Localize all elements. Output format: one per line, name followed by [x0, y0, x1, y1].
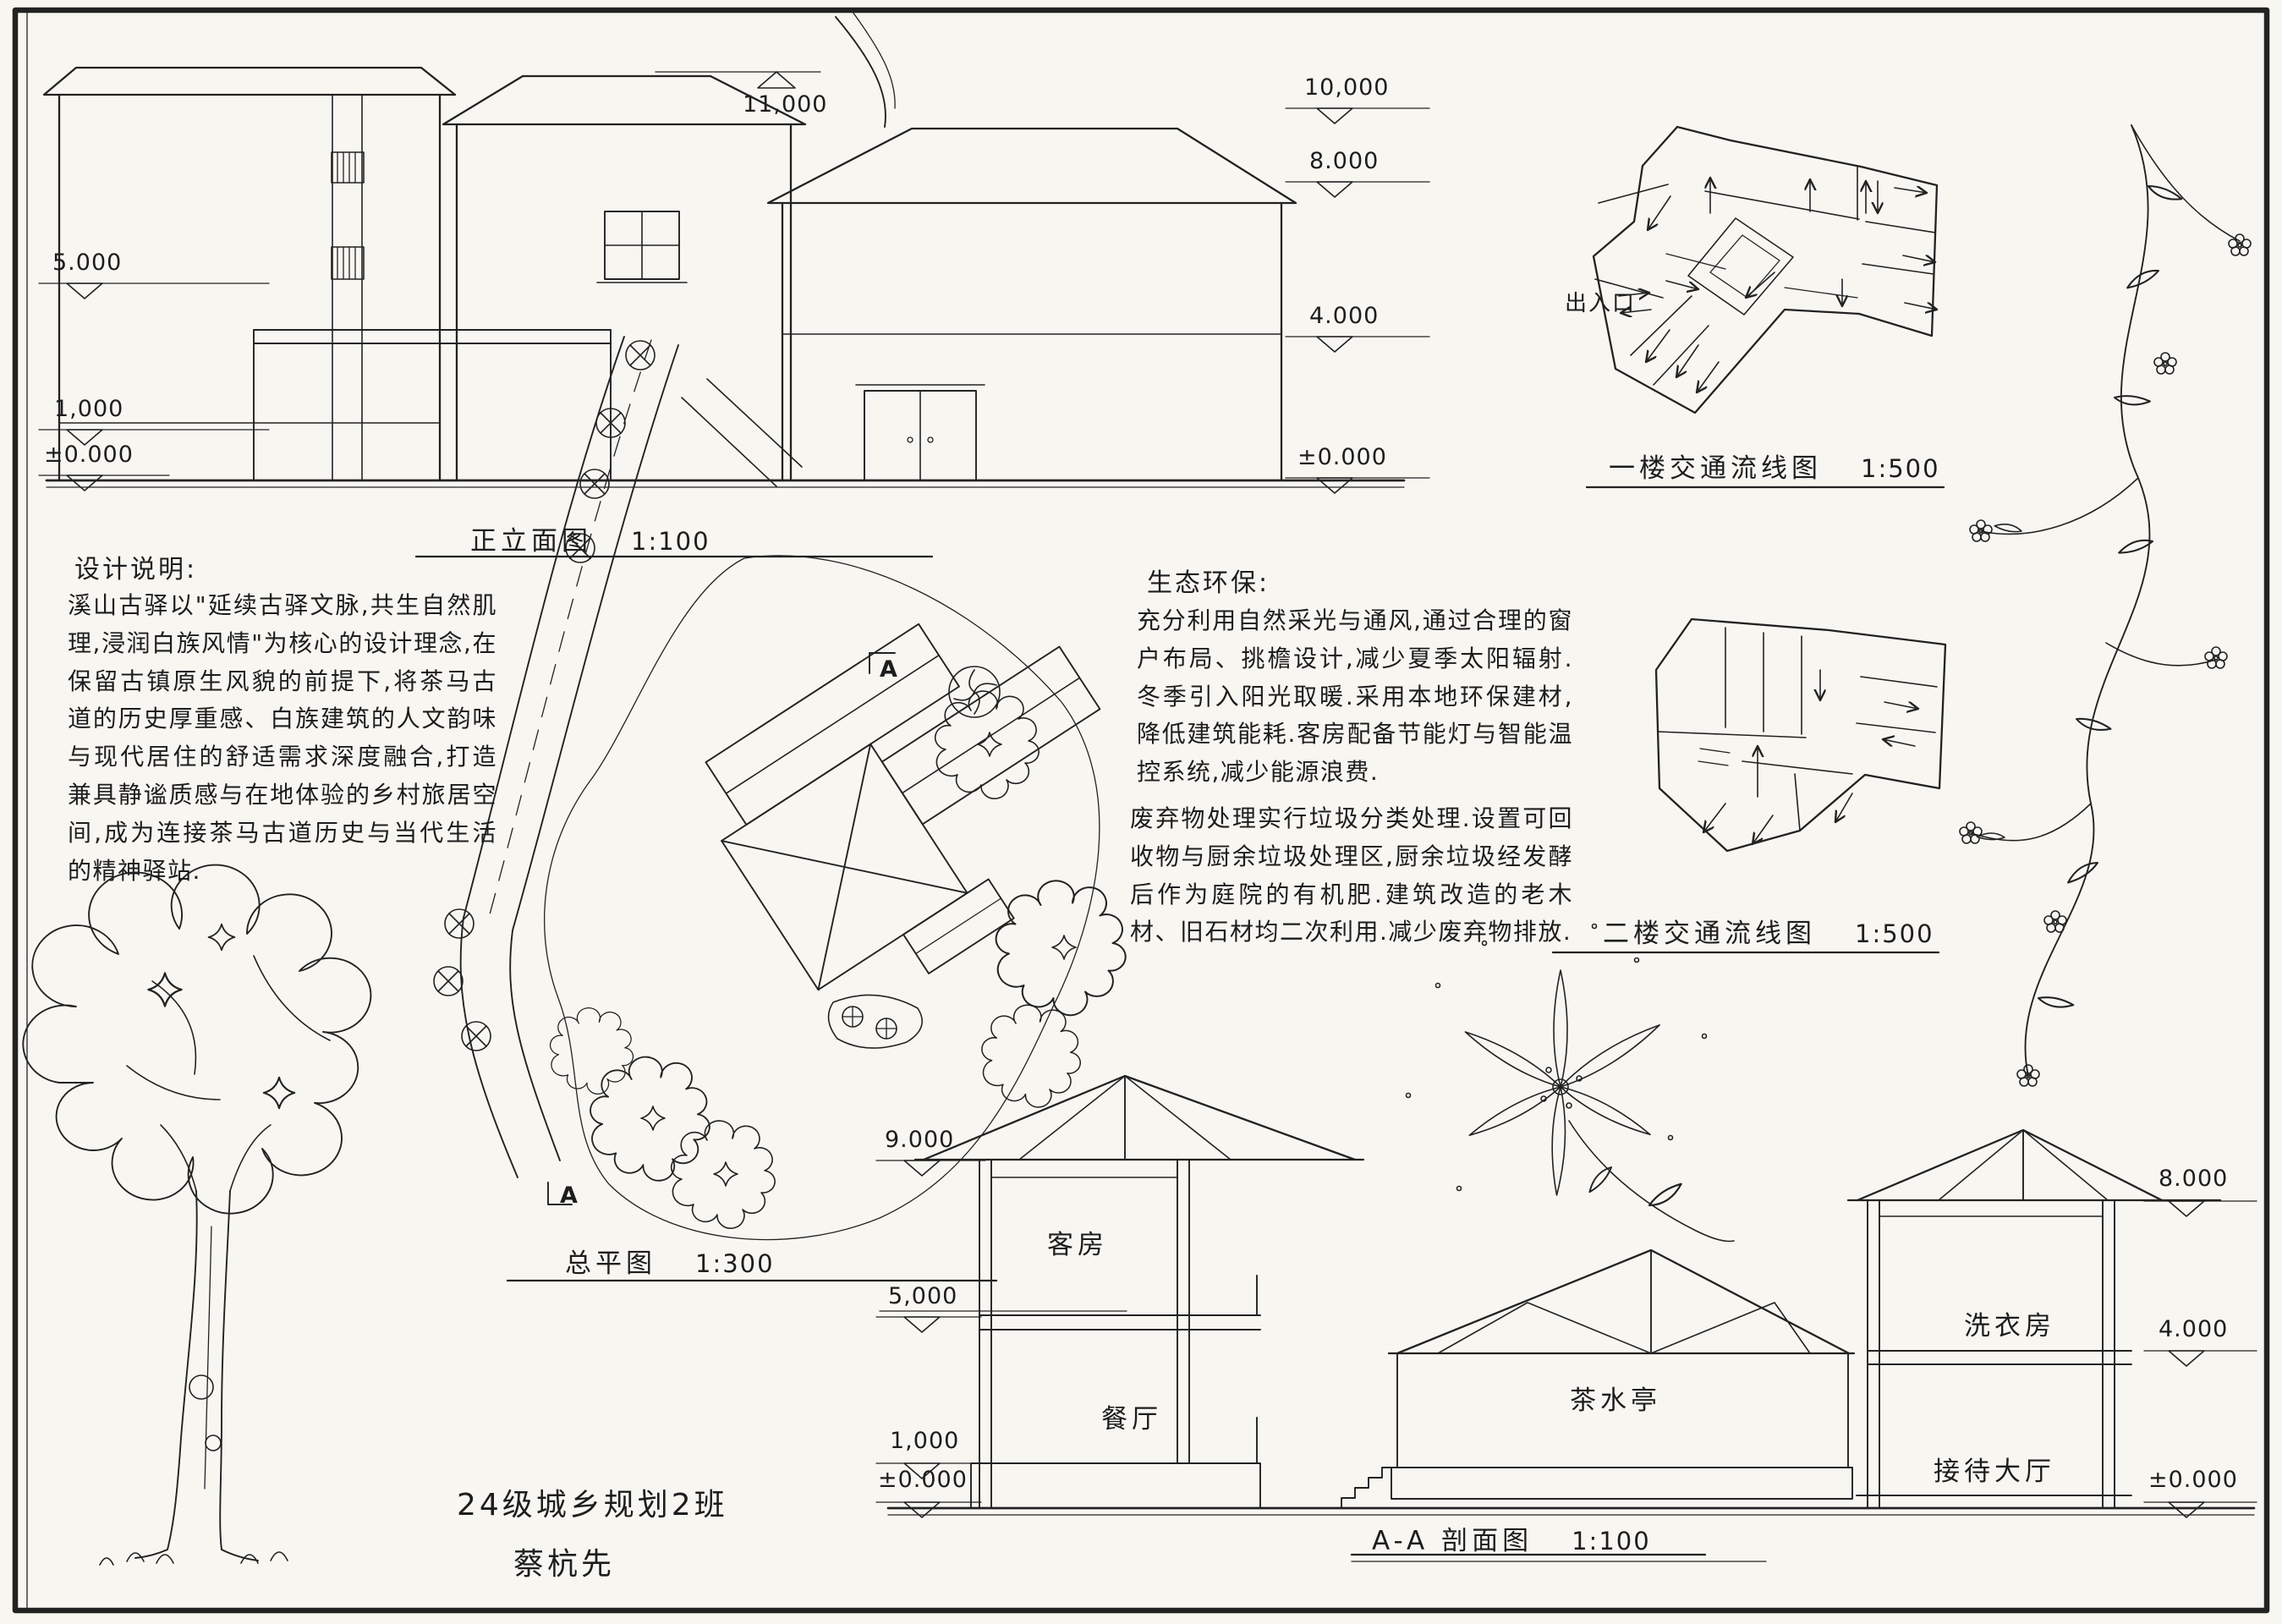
first-floor-plan-title: 一楼交通流线图 1:500	[1609, 447, 1940, 485]
sect-level-8000: 8.000	[2159, 1166, 2228, 1192]
site-plan-title: 总平图 1:300	[565, 1242, 775, 1280]
elev-level-1000: 1,000	[54, 396, 123, 422]
second-floor-plan-scale: 1:500	[1855, 919, 1934, 948]
eco-notes-heading: 生态环保:	[1147, 562, 1270, 599]
lily-flower-sketch	[1407, 924, 1735, 1242]
sect-level-5000: 5,000	[888, 1283, 957, 1309]
section-title-text: A-A 剖面图	[1372, 1519, 1533, 1557]
site-plan-scale: 1:300	[695, 1249, 775, 1278]
second-floor-plan-title-text: 二楼交通流线图	[1603, 912, 1816, 950]
sect-level-9000: 9.000	[885, 1127, 954, 1153]
design-notes-heading: 设计说明:	[74, 548, 197, 585]
room-label-reception: 接待大厅	[1934, 1450, 2055, 1488]
site-plan-drawing	[434, 337, 1170, 1311]
elevation-scale: 1:100	[631, 527, 710, 556]
sect-level-0-right: ±0.000	[2148, 1467, 2238, 1493]
eco-notes-paragraph-2: 废弃物处理实行垃圾分类处理.设置可回收物与厨余垃圾处理区,厨余垃圾经发酵后作为庭…	[1130, 800, 1573, 952]
elev-level-0: ±0.000	[44, 442, 134, 468]
planted-bed	[829, 995, 923, 1048]
first-floor-circulation-drawing	[1587, 127, 1944, 487]
pencil-scribble	[836, 12, 895, 127]
tree-sketch	[23, 865, 370, 1565]
sect-level-4000: 4.000	[2159, 1316, 2228, 1342]
eco-notes-paragraph-1: 充分利用自然采光与通风,通过合理的窗户布局、挑檐设计,减少夏季太阳辐射.冬季引入…	[1137, 602, 1573, 792]
second-floor-circulation-drawing	[1553, 619, 1945, 952]
flowering-vine-sketch	[1960, 125, 2251, 1086]
site-tree-clouds	[551, 691, 1126, 1228]
flow-arrows-first	[1619, 178, 1937, 392]
front-elevation-drawing	[39, 68, 1429, 557]
elev-level-4000: 4.000	[1309, 303, 1379, 329]
elev-level-5000: 5.000	[52, 250, 122, 276]
design-notes-body: 溪山古驿以"延续古驿文脉,共生自然肌理,浸润白族风情"为核心的设计理念,在保留古…	[68, 587, 497, 890]
elevation-title: 正立面图 1:100	[470, 519, 710, 557]
room-label-guest: 客房	[1047, 1223, 1108, 1261]
signature-name: 蔡杭先	[513, 1539, 615, 1583]
room-label-dining: 餐厅	[1101, 1397, 1162, 1435]
first-floor-plan-scale: 1:500	[1861, 454, 1940, 483]
room-label-tea: 茶水亭	[1570, 1379, 1661, 1417]
elev-level-10000: 10,000	[1304, 74, 1389, 101]
sect-level-0-left: ±0.000	[878, 1467, 968, 1493]
elev-ridge-level: 11,000	[743, 91, 827, 118]
site-building-cluster	[681, 567, 1170, 1029]
presentation-board: 设计说明: 溪山古驿以"延续古驿文脉,共生自然肌理,浸润白族风情"为核心的设计理…	[0, 0, 2282, 1624]
sect-level-1000: 1,000	[890, 1428, 959, 1454]
section-scale: 1:100	[1572, 1527, 1651, 1555]
room-label-laundry: 洗衣房	[1964, 1304, 2055, 1342]
elevation-title-text: 正立面图	[470, 519, 592, 557]
section-cut-mark-bottom: A	[560, 1182, 578, 1209]
elev-level-8000: 8.000	[1309, 148, 1379, 174]
pinwheel-symbol	[949, 667, 1000, 717]
entrance-label: 出入口	[1565, 286, 1636, 317]
section-title: A-A 剖面图 1:100	[1372, 1519, 1651, 1557]
signature-class: 24级城乡规划2班	[457, 1480, 728, 1524]
first-floor-plan-title-text: 一楼交通流线图	[1609, 447, 1822, 485]
section-cut-mark-top: A	[880, 656, 897, 683]
second-floor-plan-title: 二楼交通流线图 1:500	[1603, 912, 1934, 950]
flow-arrows-second	[1703, 670, 1918, 844]
site-plan-title-text: 总平图	[565, 1242, 656, 1280]
elev-level-0-right: ±0.000	[1297, 444, 1387, 470]
